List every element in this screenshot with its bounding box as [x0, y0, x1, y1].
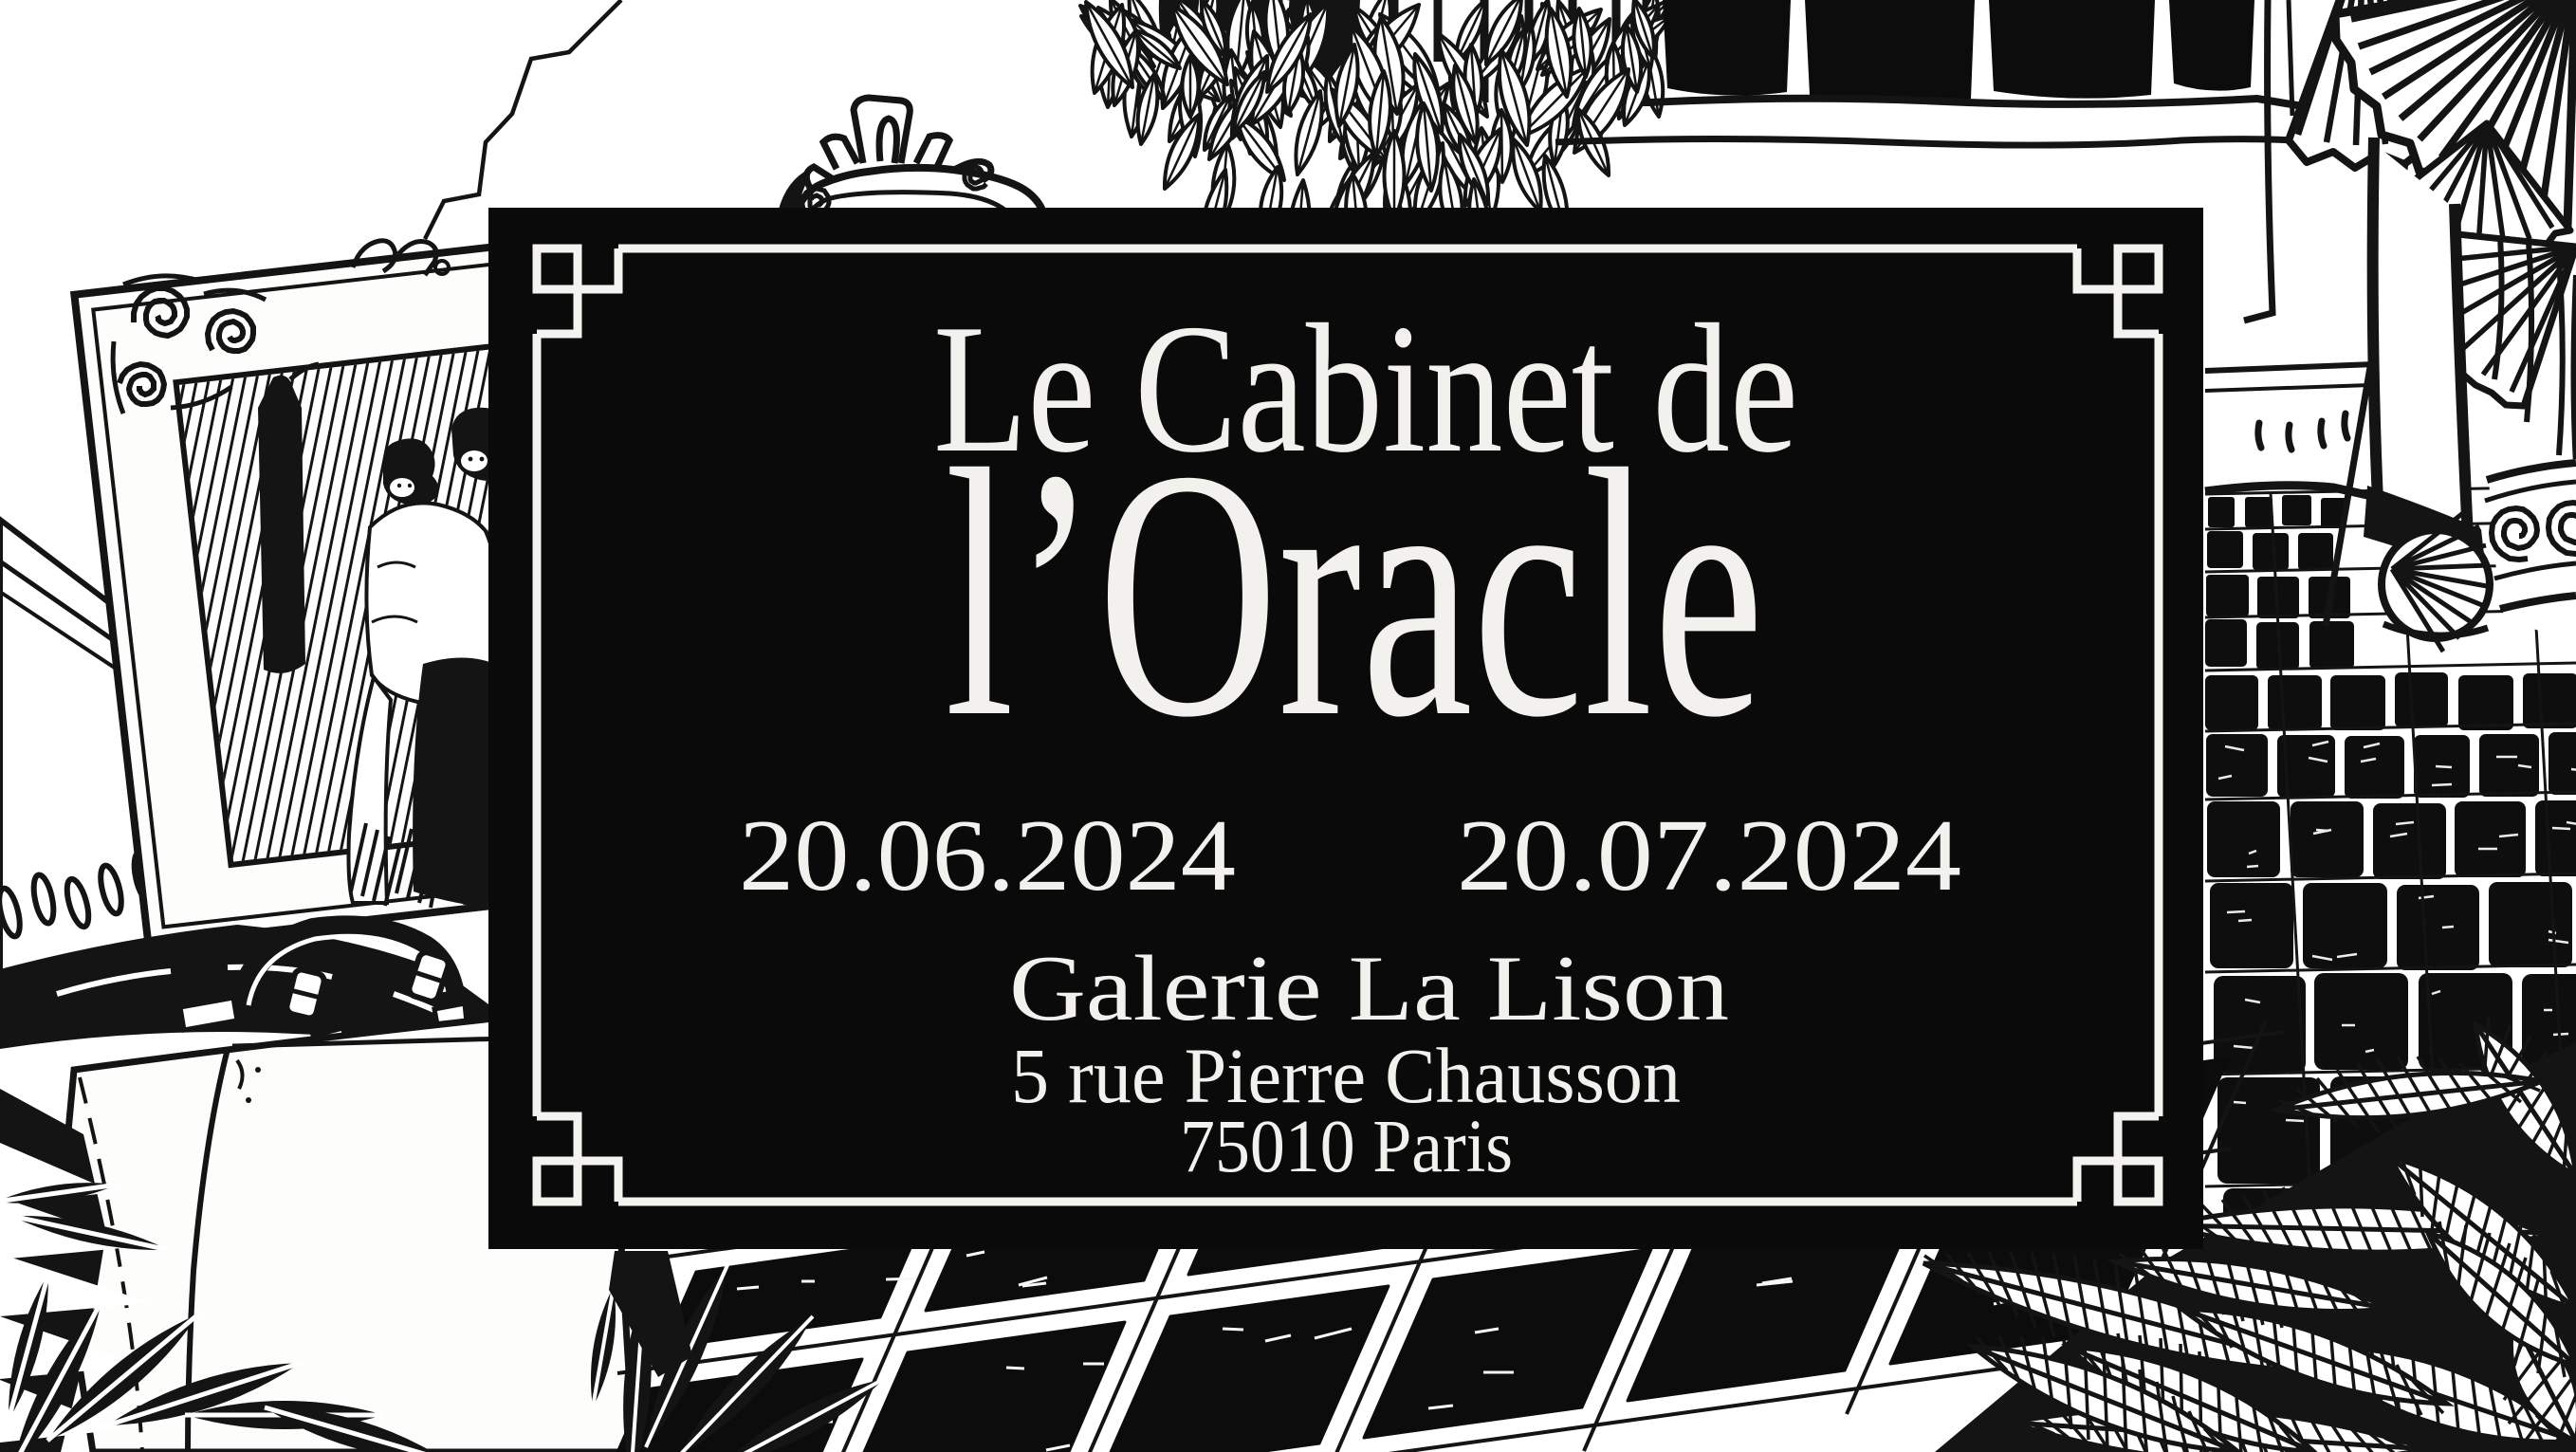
- svg-text:20.07.2024: 20.07.2024: [1457, 800, 1961, 912]
- svg-text:Galerie La Lison: Galerie La Lison: [1009, 937, 1729, 1040]
- svg-text:l’Oracle: l’Oracle: [945, 397, 1764, 791]
- svg-text:75010 Paris: 75010 Paris: [1180, 1106, 1513, 1188]
- svg-text:20.06.2024: 20.06.2024: [739, 800, 1236, 912]
